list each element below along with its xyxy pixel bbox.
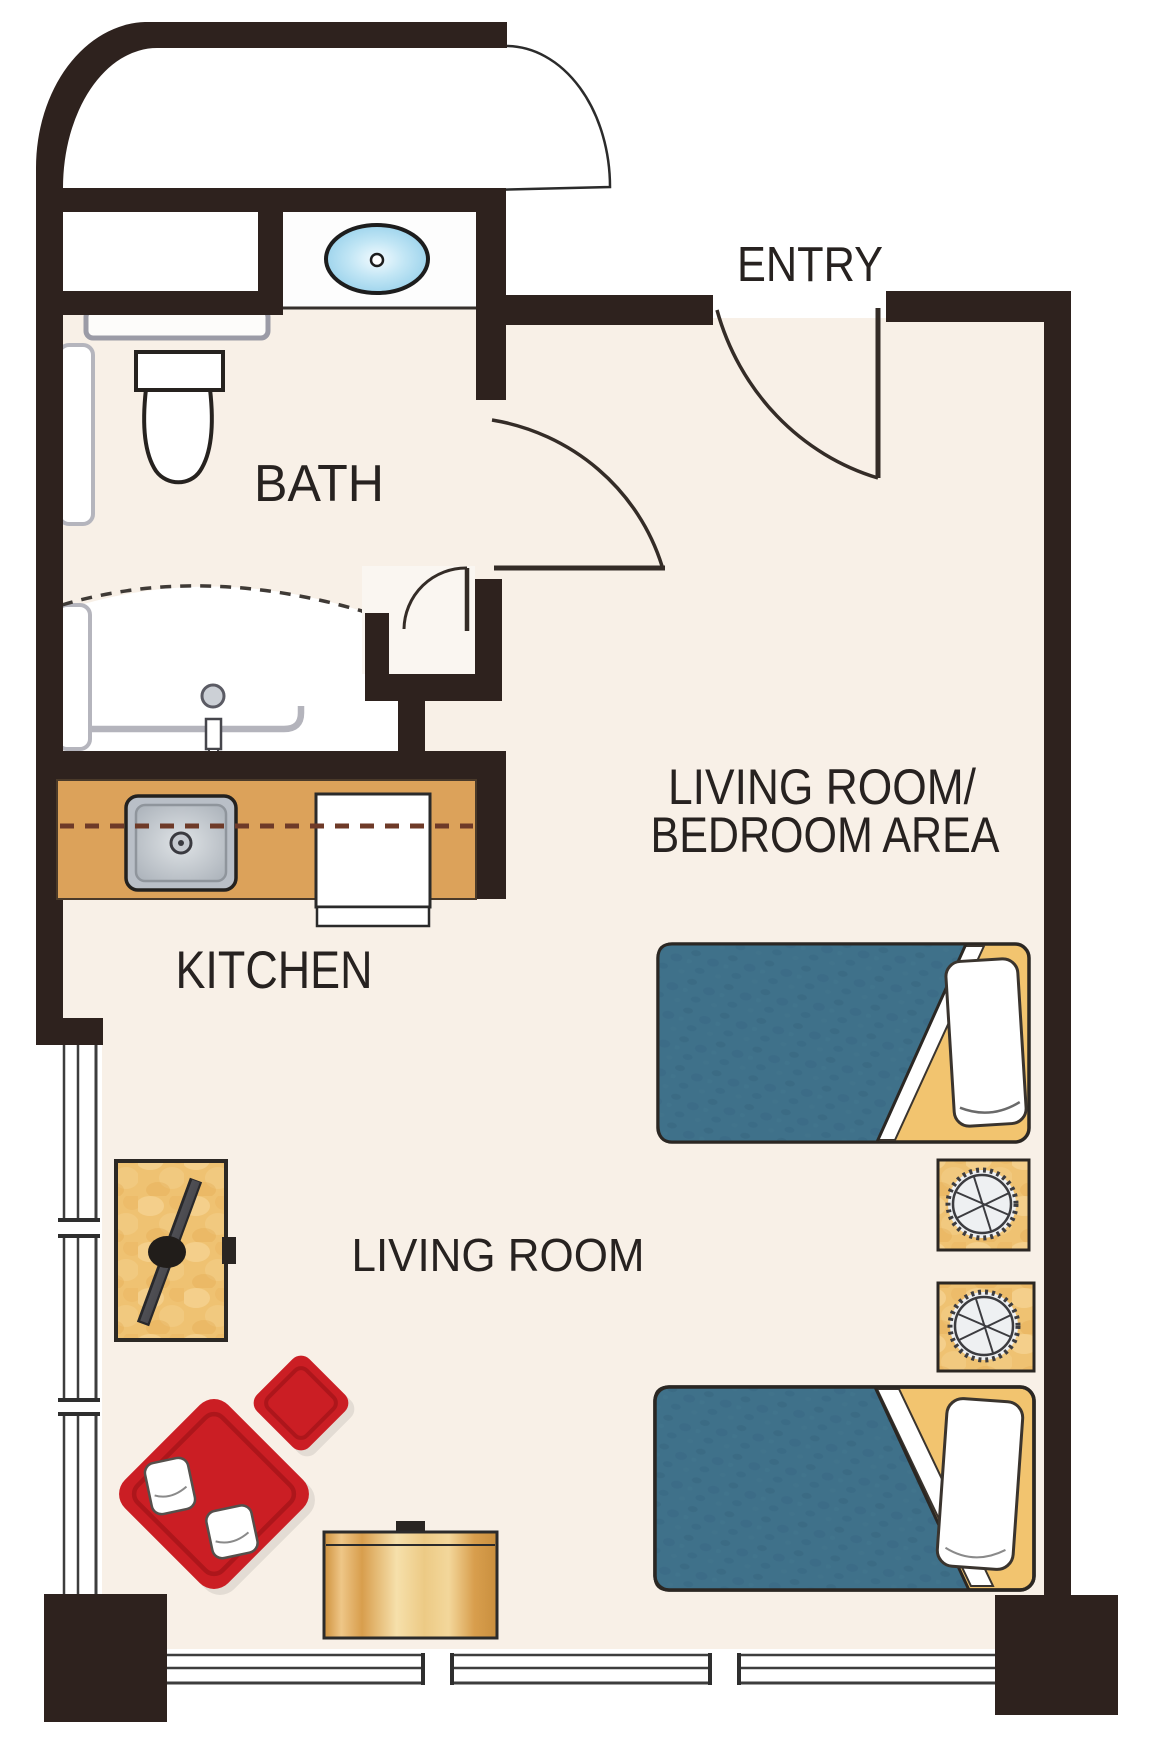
- svg-text:BEDROOM AREA: BEDROOM AREA: [651, 807, 1001, 863]
- svg-text:ENTRY: ENTRY: [737, 238, 883, 292]
- svg-text:BATH: BATH: [254, 455, 384, 513]
- svg-text:LIVING ROOM: LIVING ROOM: [352, 1229, 645, 1281]
- svg-text:KITCHEN: KITCHEN: [176, 941, 373, 1000]
